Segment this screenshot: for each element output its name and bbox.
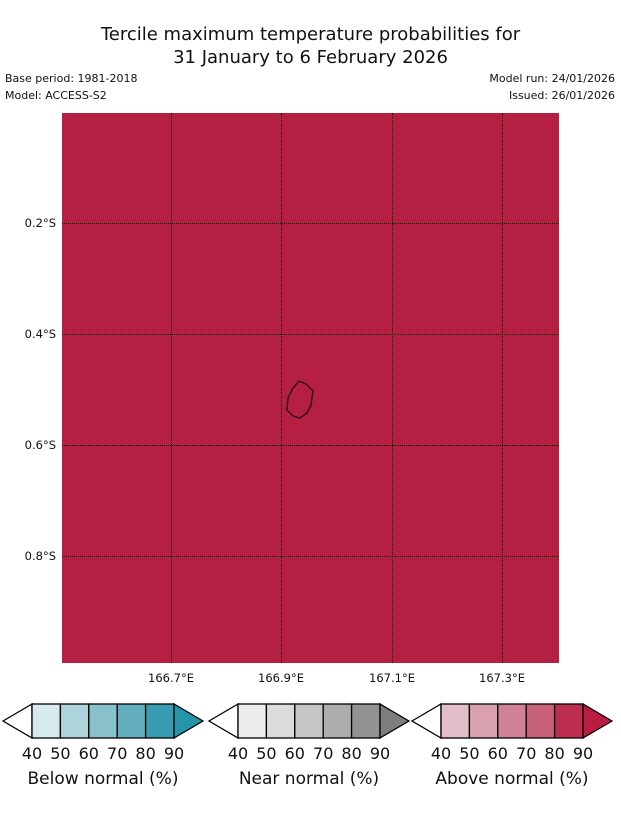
model-run-text: Model run: 24/01/2026: [489, 70, 615, 87]
legend-above-normal-label: Above normal (%): [435, 769, 588, 789]
colorbar-over-arrow: [380, 704, 409, 738]
colorbar-tick-70: 70: [107, 744, 127, 763]
legend-above-normal: 40 50 60 70 80 90 Above normal (%): [410, 702, 614, 794]
legend-near-normal-label: Near normal (%): [239, 769, 379, 789]
model-text: Model: ACCESS-S2: [5, 87, 137, 104]
colorbar-segment-50-60: [469, 704, 497, 738]
x-tick-166.7e: 166.7°E: [148, 671, 194, 685]
y-tick-0.8s: 0.8°S: [4, 548, 56, 564]
colorbar-tick-50: 50: [459, 744, 479, 763]
island-outline: [62, 113, 559, 663]
gridline-0.2s: [62, 223, 559, 224]
colorbar-tick-40: 40: [228, 744, 248, 763]
colorbar-tick-50: 50: [50, 744, 70, 763]
colorbar-tick-80: 80: [341, 744, 361, 763]
gridline-0.8s: [62, 556, 559, 557]
colorbar-tick-90: 90: [164, 744, 184, 763]
island-outline-path: [287, 381, 313, 418]
issued-text: Issued: 26/01/2026: [489, 87, 615, 104]
colorbar-segment-50-60: [60, 704, 88, 738]
colorbar-tick-60: 60: [285, 744, 305, 763]
colorbar-under-arrow: [209, 704, 238, 738]
colorbar-segment-50-60: [266, 704, 294, 738]
colorbar-segment-80-90: [555, 704, 583, 738]
gridline-167.3e: [502, 113, 503, 663]
colorbar-tick-90: 90: [370, 744, 390, 763]
meta-right: Model run: 24/01/2026 Issued: 26/01/2026: [489, 70, 615, 104]
colorbar-segment-80-90: [352, 704, 380, 738]
legend-below-normal-label: Below normal (%): [28, 769, 179, 789]
colorbar-tick-50: 50: [256, 744, 276, 763]
colorbar-tick-40: 40: [431, 744, 451, 763]
y-tick-0.6s: 0.6°S: [4, 437, 56, 453]
colorbar-tick-60: 60: [79, 744, 99, 763]
x-tick-166.9e: 166.9°E: [258, 671, 304, 685]
title-line1: Tercile maximum temperature probabilitie…: [0, 23, 621, 46]
gridline-0.6s: [62, 445, 559, 446]
colorbar-segment-70-80: [526, 704, 554, 738]
legend-below-normal: 40 50 60 70 80 90 Below normal (%): [1, 702, 205, 794]
colorbar-tick-80: 80: [135, 744, 155, 763]
colorbar-tick-70: 70: [516, 744, 536, 763]
colorbar-segment-60-70: [295, 704, 323, 738]
colorbar-tick-60: 60: [488, 744, 508, 763]
y-tick-0.4s: 0.4°S: [4, 326, 56, 342]
colorbar-segment-60-70: [89, 704, 117, 738]
colorbar-under-arrow: [412, 704, 441, 738]
colorbar-tick-40: 40: [22, 744, 42, 763]
colorbar-segment-40-50: [238, 704, 266, 738]
figure-title: Tercile maximum temperature probabilitie…: [0, 23, 621, 69]
title-line2: 31 January to 6 February 2026: [0, 46, 621, 69]
colorbar-segment-60-70: [498, 704, 526, 738]
colorbar-segment-70-80: [323, 704, 351, 738]
gridline-167.1e: [392, 113, 393, 663]
colorbar-over-arrow: [583, 704, 612, 738]
x-tick-167.1e: 167.1°E: [369, 671, 415, 685]
gridline-166.9e: [281, 113, 282, 663]
colorbar-under-arrow: [3, 704, 32, 738]
colorbar-segment-40-50: [32, 704, 60, 738]
gridline-166.7e: [171, 113, 172, 663]
map-area: © Commonwealth of Australia 2026, Bureau…: [62, 113, 559, 663]
colorbar-segment-70-80: [117, 704, 145, 738]
colorbar-segment-40-50: [441, 704, 469, 738]
colorbar-segment-80-90: [146, 704, 174, 738]
colorbar-tick-80: 80: [544, 744, 564, 763]
gridline-0.4s: [62, 334, 559, 335]
colorbar-tick-90: 90: [573, 744, 593, 763]
figure: Tercile maximum temperature probabilitie…: [0, 0, 621, 839]
meta-left: Base period: 1981-2018 Model: ACCESS-S2: [5, 70, 137, 104]
colorbar-tick-70: 70: [313, 744, 333, 763]
y-tick-0.2s: 0.2°S: [4, 215, 56, 231]
legend-near-normal: 40 50 60 70 80 90 Near normal (%): [207, 702, 411, 794]
x-tick-167.3e: 167.3°E: [479, 671, 525, 685]
base-period-text: Base period: 1981-2018: [5, 70, 137, 87]
colorbar-over-arrow: [174, 704, 203, 738]
